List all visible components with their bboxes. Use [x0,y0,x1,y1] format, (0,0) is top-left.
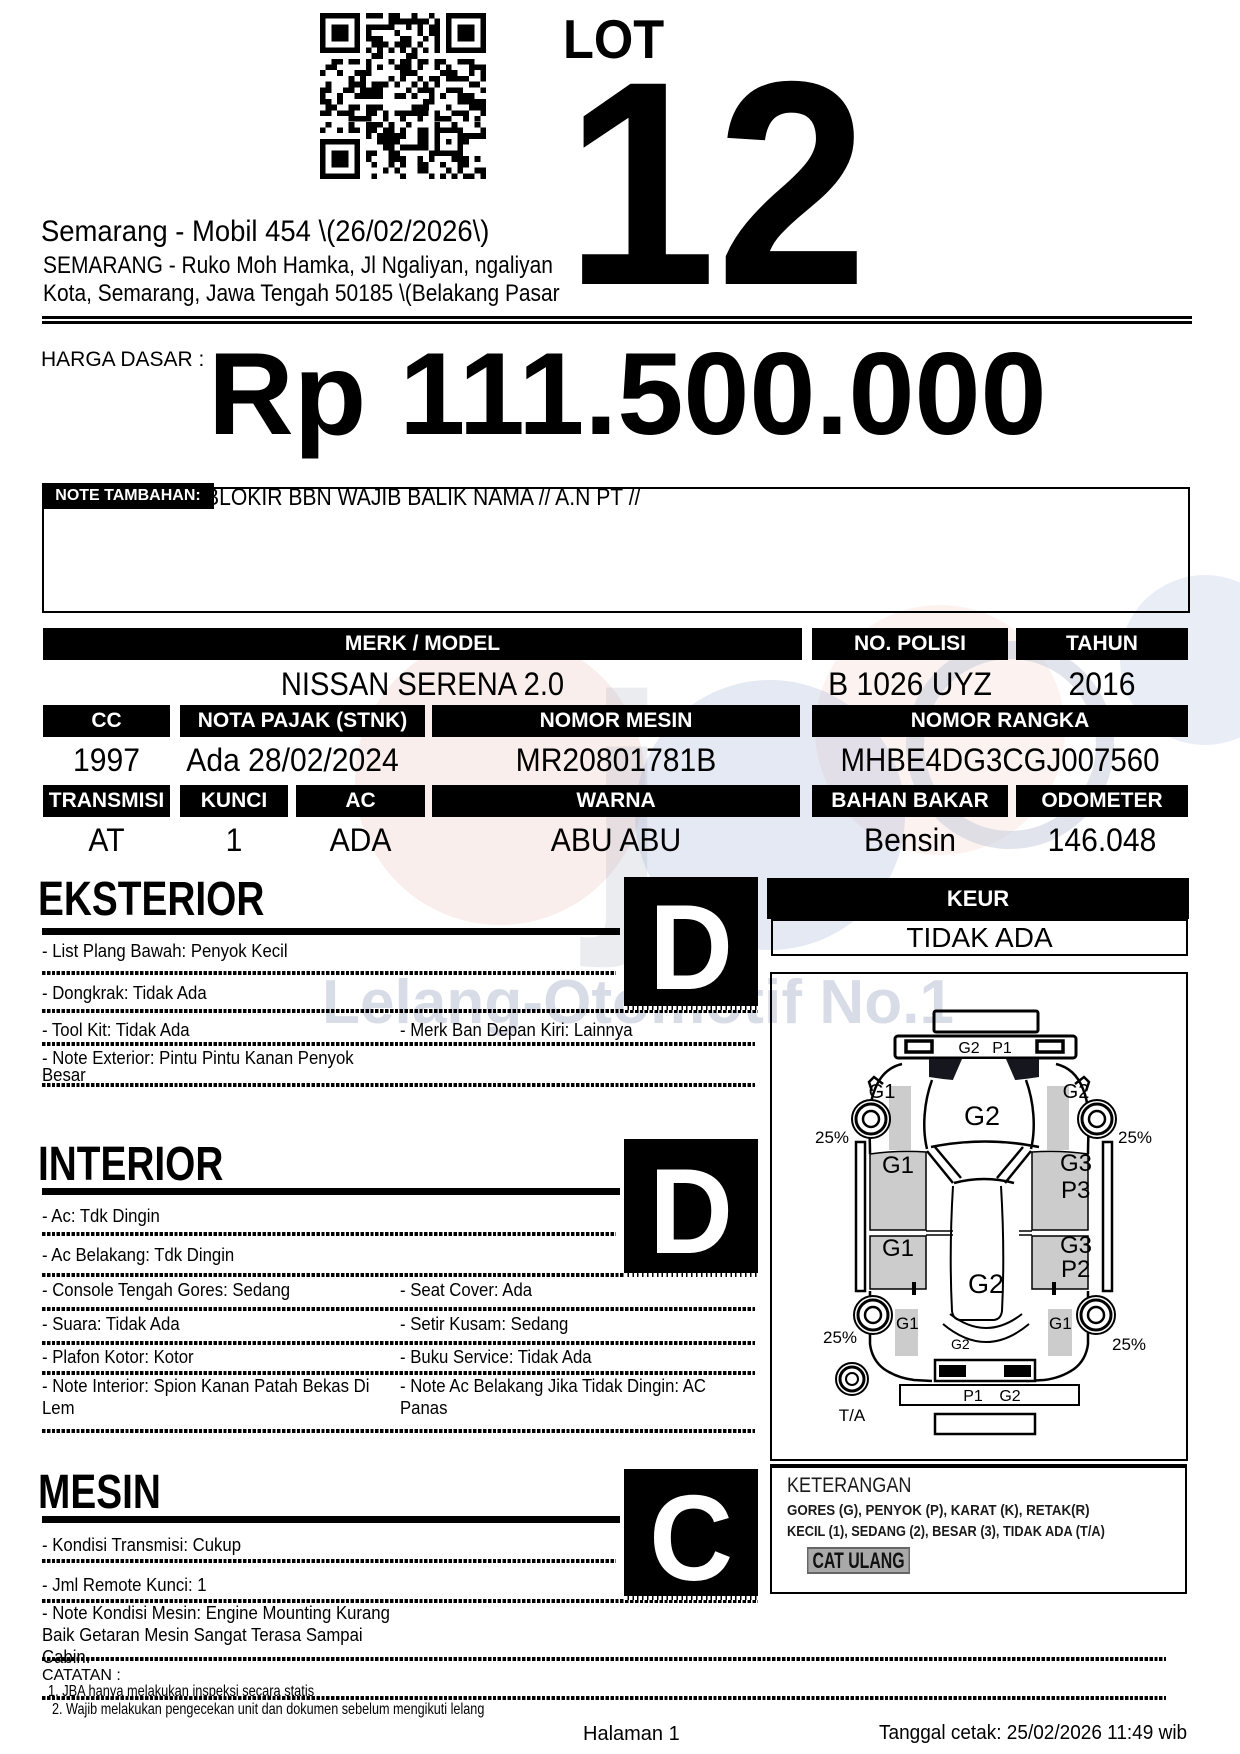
svg-text:G2: G2 [958,1040,979,1057]
svg-text:25%: 25% [1118,1128,1152,1147]
svg-text:T/A: T/A [839,1406,866,1425]
svg-text:G1: G1 [882,1152,914,1179]
svg-text:P1: P1 [992,1040,1012,1057]
svg-text:G2: G2 [964,1101,1000,1131]
svg-text:G2: G2 [951,1336,970,1352]
svg-text:P2: P2 [1061,1256,1090,1283]
svg-text:G2: G2 [968,1269,1004,1299]
svg-text:P3: P3 [1061,1177,1090,1204]
svg-text:G3: G3 [1060,1150,1092,1177]
svg-text:G1: G1 [1049,1314,1072,1333]
svg-text:P1: P1 [963,1388,983,1405]
svg-text:25%: 25% [815,1128,849,1147]
svg-text:25%: 25% [1112,1335,1146,1354]
svg-text:G2: G2 [999,1388,1020,1405]
svg-text:G2: G2 [1063,1081,1090,1103]
svg-text:G1: G1 [896,1314,919,1333]
svg-text:25%: 25% [823,1328,857,1347]
svg-text:G3: G3 [1060,1232,1092,1259]
svg-text:G1: G1 [882,1235,914,1262]
